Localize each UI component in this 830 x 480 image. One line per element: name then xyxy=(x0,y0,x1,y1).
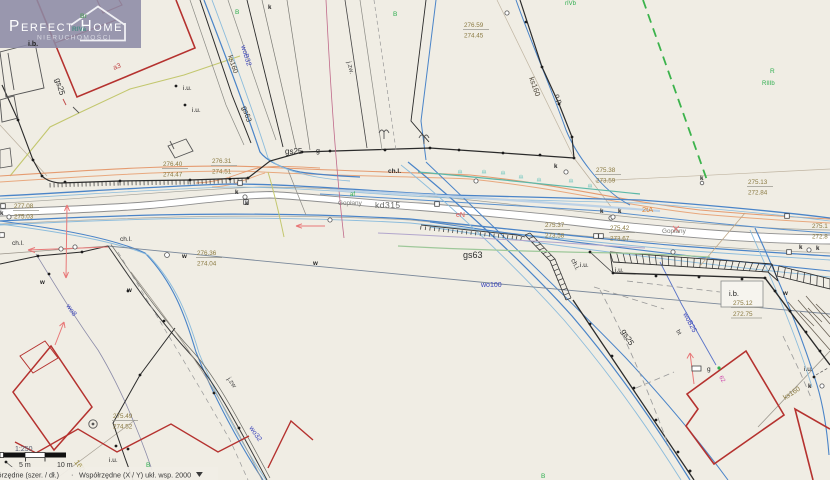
svg-text:k: k xyxy=(554,163,558,170)
svg-text:275.13: 275.13 xyxy=(748,179,768,186)
svg-text:i.u.: i.u. xyxy=(580,262,589,269)
svg-text:Perfect Home: Perfect Home xyxy=(9,18,123,35)
svg-text:276.59: 276.59 xyxy=(464,22,484,29)
svg-text:272.75: 272.75 xyxy=(733,311,753,318)
svg-text:275.42: 275.42 xyxy=(610,225,630,232)
svg-text:k: k xyxy=(618,208,622,215)
svg-text:órzędne (szer. / dł.): órzędne (szer. / dł.) xyxy=(0,471,59,480)
svg-text:B: B xyxy=(393,11,397,18)
svg-text:i.b.: i.b. xyxy=(28,41,38,48)
svg-text:k: k xyxy=(816,245,820,252)
svg-text:272.84: 272.84 xyxy=(748,190,768,197)
svg-text:i.u.: i.u. xyxy=(183,85,192,92)
svg-text:275.03: 275.03 xyxy=(14,214,34,221)
svg-text:274.52: 274.52 xyxy=(113,424,133,431)
svg-text:275.38: 275.38 xyxy=(596,167,616,174)
svg-text:eN: eN xyxy=(456,212,465,219)
svg-text:273.59: 273.59 xyxy=(596,178,616,185)
svg-text:kd315: kd315 xyxy=(375,200,401,210)
svg-text:274.51: 274.51 xyxy=(212,169,232,176)
svg-text:gs63: gs63 xyxy=(463,250,483,260)
svg-text:B: B xyxy=(541,473,545,480)
svg-text:gs25: gs25 xyxy=(285,147,303,156)
svg-text:2tA: 2tA xyxy=(642,205,653,214)
svg-text:274.47: 274.47 xyxy=(163,172,183,179)
svg-text:274.45: 274.45 xyxy=(464,33,484,40)
svg-text:i.u.: i.u. xyxy=(109,457,118,464)
svg-text:Gopłany: Gopłany xyxy=(338,200,363,207)
svg-text:276.36: 276.36 xyxy=(197,250,217,257)
svg-text:1:250: 1:250 xyxy=(15,446,33,453)
svg-text:wo100: wo100 xyxy=(480,282,502,289)
svg-text:274.04: 274.04 xyxy=(197,261,217,268)
svg-text:276.31: 276.31 xyxy=(212,158,232,165)
svg-text:k: k xyxy=(0,210,4,217)
svg-text:i.u.: i.u. xyxy=(804,366,813,373)
svg-text:rIVb: rIVb xyxy=(565,1,577,7)
svg-text:ch.l.: ch.l. xyxy=(12,240,24,247)
svg-text:i.u.: i.u. xyxy=(192,107,201,114)
svg-text:w: w xyxy=(181,253,187,260)
svg-text:k: k xyxy=(600,208,604,215)
svg-text:275.49: 275.49 xyxy=(113,413,133,420)
svg-text:k: k xyxy=(245,200,249,207)
svg-text:277.08: 277.08 xyxy=(14,203,34,210)
svg-text:Gopłany: Gopłany xyxy=(662,228,687,235)
svg-text:275.1: 275.1 xyxy=(812,223,828,230)
svg-text:ch.l.: ch.l. xyxy=(120,236,132,243)
svg-text:ch.l.: ch.l. xyxy=(388,168,401,175)
svg-text:Współrzędne (X / Y) ukł. wsp.: Współrzędne (X / Y) ukł. wsp. 2000 xyxy=(79,471,191,480)
svg-text:w: w xyxy=(312,260,318,267)
svg-text:w: w xyxy=(126,287,132,294)
svg-text:af: af xyxy=(350,192,355,198)
svg-text:k: k xyxy=(799,244,803,251)
svg-text:NIERUCHOMOŚCI: NIERUCHOMOŚCI xyxy=(37,33,112,42)
svg-text:275.37: 275.37 xyxy=(545,222,565,229)
svg-text:RIIIb: RIIIb xyxy=(762,81,775,87)
svg-text:276.40: 276.40 xyxy=(163,161,183,168)
svg-text:RlVa: RlVa xyxy=(72,26,86,33)
svg-text:k: k xyxy=(700,175,704,182)
svg-text:B: B xyxy=(235,9,239,16)
svg-text:R: R xyxy=(770,68,775,75)
svg-text:w: w xyxy=(782,290,788,297)
svg-text:Br: Br xyxy=(80,13,88,20)
svg-text:272.8: 272.8 xyxy=(812,234,828,241)
svg-text:·: · xyxy=(71,470,73,479)
svg-text:k: k xyxy=(235,189,239,196)
svg-text:k: k xyxy=(268,4,272,11)
svg-text:g: g xyxy=(316,148,320,155)
svg-text:w: w xyxy=(39,279,45,286)
svg-text:g: g xyxy=(707,366,711,373)
svg-text:273.58: 273.58 xyxy=(545,233,565,240)
svg-text:275.12: 275.12 xyxy=(733,300,753,307)
svg-text:k: k xyxy=(808,383,812,390)
svg-text:273.67: 273.67 xyxy=(610,236,630,243)
svg-text:i.u.: i.u. xyxy=(615,267,624,274)
svg-text:i.b.: i.b. xyxy=(729,289,739,298)
